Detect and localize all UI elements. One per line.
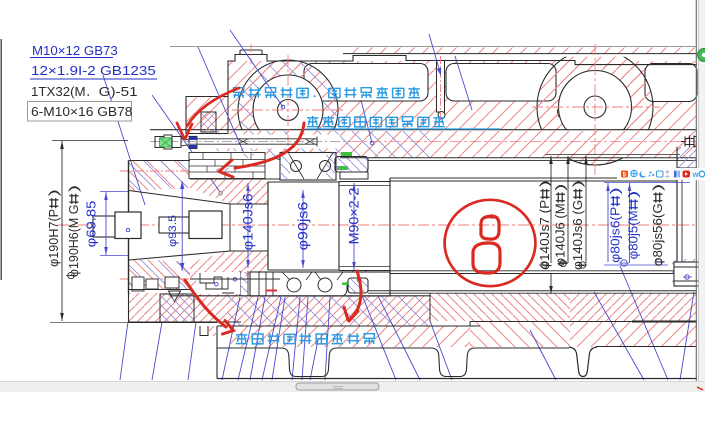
svg-text:1TX32(M: 1TX32(M [31,84,86,99]
svg-text:6-M10×16 GB78: 6-M10×16 GB78 [31,104,132,119]
svg-text:φ90js6: φ90js6 [295,202,310,251]
svg-text:): ) [651,184,665,191]
svg-text:W: W [693,172,700,179]
svg-text:φ140Js7 (P: φ140Js7 (P [538,200,552,270]
svg-text:φ80js6(P: φ80js6(P [609,207,623,263]
svg-text:φ140J6 (M: φ140J6 (M [554,203,568,266]
svg-text:G)-51: G)-51 [99,84,138,99]
svg-text:φ80js56(G: φ80js56(G [651,203,665,266]
svg-text:φ93.5: φ93.5 [167,215,179,247]
svg-text:12×1.9I-2 GB1235: 12×1.9I-2 GB1235 [31,63,156,78]
svg-text:): ) [538,180,552,187]
svg-text:φ140Js6: φ140Js6 [240,194,255,251]
svg-text:φ80j5(M: φ80j5(M [627,210,641,259]
svg-text:φ69.85: φ69.85 [83,201,98,248]
svg-text:φ190H7(P: φ190H7(P [47,209,61,267]
svg-text:φ140Js6 (G: φ140Js6 (G [571,200,585,270]
svg-text:): ) [609,187,623,194]
svg-text:φ190H6(M G: φ190H6(M G [67,205,81,278]
svg-text:): ) [554,184,568,191]
svg-text:): ) [47,189,61,196]
svg-text:): ) [627,191,641,198]
svg-text:M10×12 GB73: M10×12 GB73 [32,43,118,58]
svg-text:): ) [67,185,81,192]
svg-text:M90×2-2: M90×2-2 [346,188,361,245]
svg-text:): ) [571,180,585,187]
